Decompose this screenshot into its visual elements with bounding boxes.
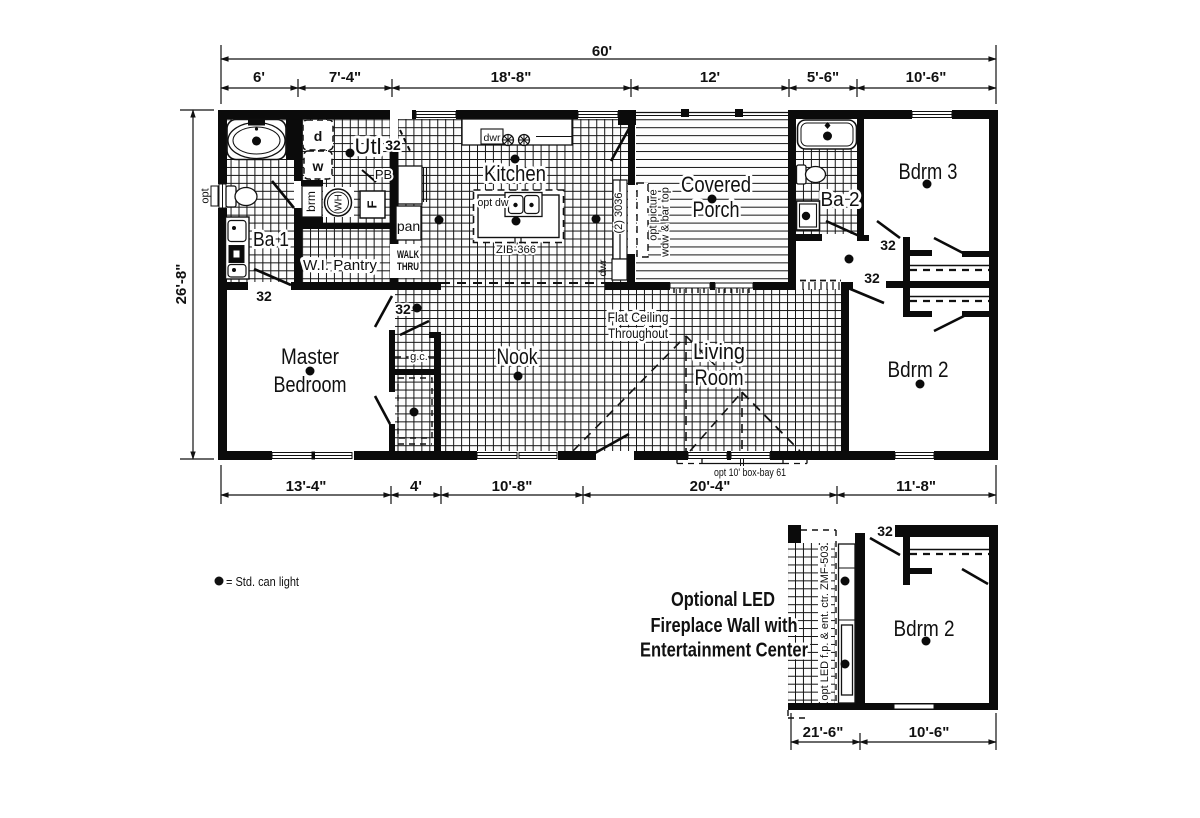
svg-text:21'-6": 21'-6" [803,724,844,741]
svg-text:32: 32 [880,237,896,253]
svg-text:pan: pan [397,218,420,234]
svg-text:Ba 2: Ba 2 [821,189,860,211]
svg-text:32: 32 [385,137,401,153]
svg-text:d: d [314,128,323,144]
svg-text:60': 60' [592,43,612,60]
svg-text:Living: Living [693,339,745,364]
svg-text:Kitchen: Kitchen [484,161,546,186]
svg-text:THRU: THRU [397,261,419,273]
svg-text:WALK: WALK [397,249,419,261]
svg-text:32: 32 [395,301,411,317]
svg-text:F: F [365,200,380,208]
svg-text:Covered: Covered [681,172,751,197]
svg-text:Bdrm 2: Bdrm 2 [888,357,949,382]
svg-text:(2) 3036: (2) 3036 [613,193,625,234]
svg-text:13'-4": 13'-4" [286,478,327,495]
svg-text:Optional LED: Optional LED [671,589,775,611]
svg-text:Utl: Utl [355,134,382,159]
svg-text:32: 32 [877,523,893,539]
svg-text:dwr: dwr [597,259,609,276]
svg-text:wdw & bar top: wdw & bar top [660,187,672,258]
svg-text:Master: Master [281,344,339,369]
svg-text:32: 32 [256,288,272,304]
svg-text:Entertainment Center: Entertainment Center [640,640,808,662]
svg-text:opt dw: opt dw [478,197,509,209]
svg-text:ZIB-366: ZIB-366 [496,244,536,256]
svg-text:w: w [312,158,324,174]
svg-text:32: 32 [864,270,880,286]
svg-text:10'-8": 10'-8" [492,478,533,495]
svg-text:dwr: dwr [484,132,501,144]
svg-text:opt picture: opt picture [648,189,660,240]
svg-text:Ba 1: Ba 1 [253,229,289,251]
svg-text:PB: PB [375,167,392,182]
svg-text:W.I. Pantry: W.I. Pantry [303,257,377,274]
svg-text:Flat Ceiling: Flat Ceiling [608,309,669,325]
svg-text:Room: Room [695,365,744,390]
svg-text:4': 4' [410,478,422,495]
svg-text:g.c.: g.c. [410,351,428,363]
svg-text:5'-6": 5'-6" [807,69,839,86]
svg-text:Fireplace Wall with: Fireplace Wall with [651,615,798,637]
svg-text:18'-8": 18'-8" [491,69,532,86]
svg-text:20'-4": 20'-4" [690,478,731,495]
svg-text:opt LED f.p. & ent. ctr. ZMF-5: opt LED f.p. & ent. ctr. ZMF-503 [819,545,831,700]
svg-text:= Std. can light: = Std. can light [226,574,299,589]
svg-text:Bedroom: Bedroom [274,372,347,397]
svg-text:WH: WH [334,194,345,211]
svg-text:7'-4": 7'-4" [329,69,361,86]
svg-text:12': 12' [700,69,720,86]
svg-text:brm: brm [304,191,318,212]
svg-text:10'-6": 10'-6" [906,69,947,86]
svg-text:11'-8": 11'-8" [896,478,936,495]
svg-text:26'-8": 26'-8" [173,264,190,305]
svg-text:Nook: Nook [497,344,539,369]
svg-text:6': 6' [253,69,265,86]
svg-text:10'-6": 10'-6" [909,724,950,741]
svg-text:Throughout: Throughout [608,325,668,341]
svg-text:opt: opt [200,188,212,203]
